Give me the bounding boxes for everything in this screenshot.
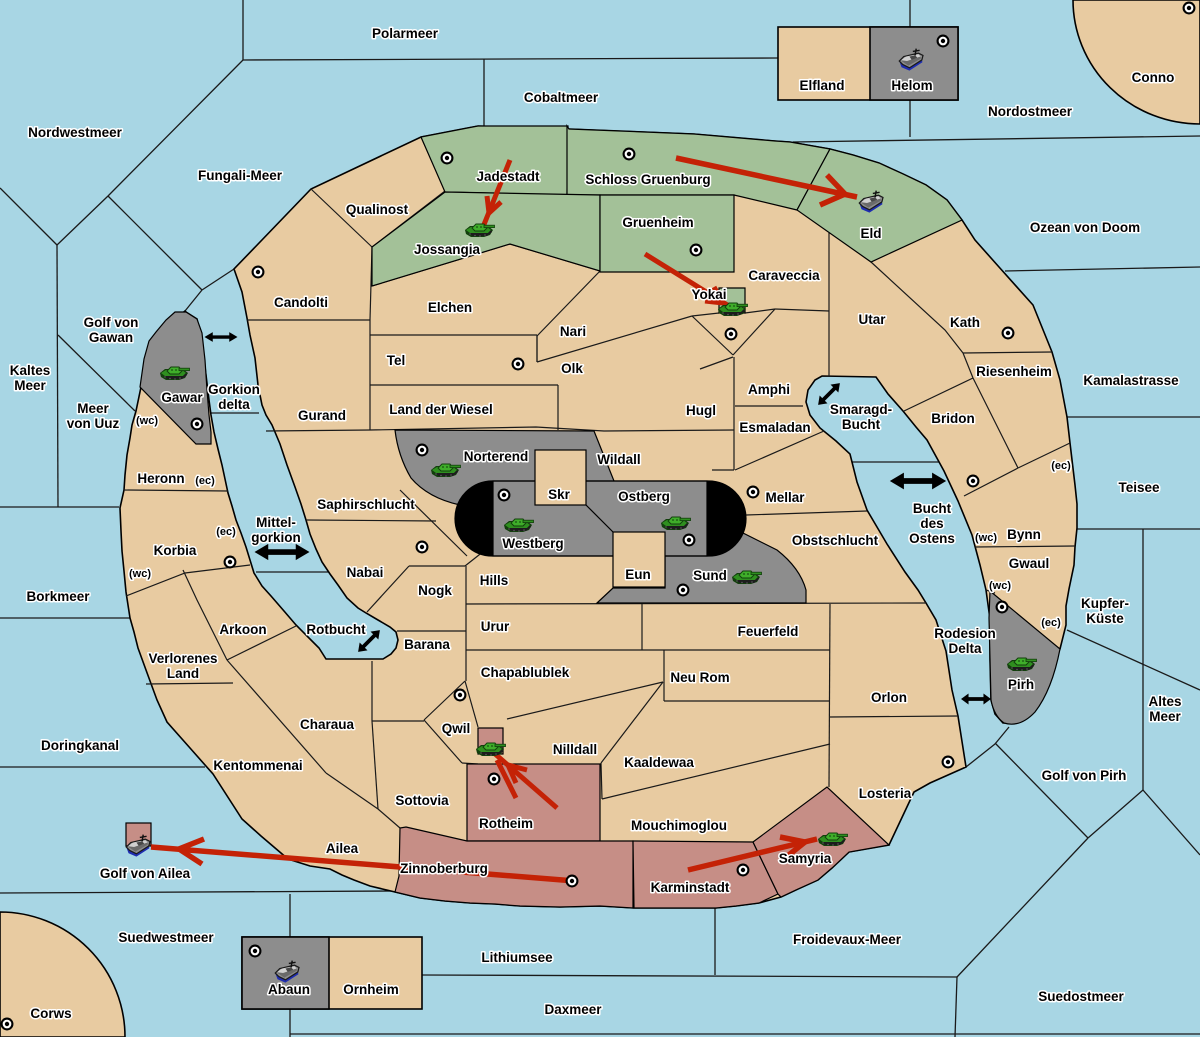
svg-text:Daxmeer: Daxmeer bbox=[544, 1002, 602, 1017]
svg-text:Küste: Küste bbox=[1086, 611, 1124, 626]
svg-text:Caraveccia: Caraveccia bbox=[748, 268, 820, 283]
svg-text:Meer: Meer bbox=[77, 401, 109, 416]
svg-text:(ec): (ec) bbox=[195, 475, 215, 487]
svg-text:Arkoon: Arkoon bbox=[219, 622, 266, 637]
svg-text:Saphirschlucht: Saphirschlucht bbox=[317, 497, 415, 512]
svg-text:Charaua: Charaua bbox=[300, 717, 355, 732]
svg-text:Helom: Helom bbox=[891, 78, 932, 93]
svg-text:Ostberg: Ostberg bbox=[618, 489, 670, 504]
svg-text:Qwil: Qwil bbox=[442, 721, 471, 736]
svg-text:Suedostmeer: Suedostmeer bbox=[1038, 989, 1124, 1004]
svg-text:Lithiumsee: Lithiumsee bbox=[481, 950, 553, 965]
svg-text:Mittel-: Mittel- bbox=[256, 515, 296, 530]
svg-text:Rotheim: Rotheim bbox=[479, 816, 533, 831]
svg-text:Gwaul: Gwaul bbox=[1009, 556, 1050, 571]
svg-text:Schloss Gruenburg: Schloss Gruenburg bbox=[585, 172, 710, 187]
svg-text:Candolti: Candolti bbox=[274, 295, 328, 310]
svg-text:Neu Rom: Neu Rom bbox=[670, 670, 729, 685]
svg-text:Skr: Skr bbox=[548, 487, 571, 502]
svg-text:(wc): (wc) bbox=[975, 532, 997, 544]
svg-text:Hugl: Hugl bbox=[686, 403, 716, 418]
svg-text:Hills: Hills bbox=[480, 573, 509, 588]
svg-text:Suedwestmeer: Suedwestmeer bbox=[118, 930, 214, 945]
svg-text:Kentommenai: Kentommenai bbox=[213, 758, 302, 773]
svg-text:Nabai: Nabai bbox=[347, 565, 384, 580]
svg-text:Losteria: Losteria bbox=[859, 786, 912, 801]
svg-text:Bridon: Bridon bbox=[931, 411, 975, 426]
svg-text:Obstschlucht: Obstschlucht bbox=[792, 533, 879, 548]
svg-text:Fungali-Meer: Fungali-Meer bbox=[198, 168, 283, 183]
svg-text:Olk: Olk bbox=[561, 361, 583, 376]
svg-text:(wc): (wc) bbox=[136, 415, 158, 427]
svg-text:(ec): (ec) bbox=[216, 526, 236, 538]
svg-text:Delta: Delta bbox=[948, 641, 982, 656]
svg-text:Kaltes: Kaltes bbox=[10, 363, 51, 378]
svg-text:Gurand: Gurand bbox=[298, 408, 346, 423]
svg-text:Chapablublek: Chapablublek bbox=[481, 665, 570, 680]
svg-text:Kaaldewaa: Kaaldewaa bbox=[624, 755, 694, 770]
svg-text:Ostens: Ostens bbox=[909, 531, 955, 546]
svg-text:Golf von: Golf von bbox=[84, 315, 139, 330]
svg-text:Nilldall: Nilldall bbox=[553, 742, 597, 757]
svg-text:Barana: Barana bbox=[404, 637, 450, 652]
svg-text:Conno: Conno bbox=[1132, 70, 1175, 85]
svg-text:Korbia: Korbia bbox=[154, 543, 197, 558]
svg-text:(wc): (wc) bbox=[129, 568, 151, 580]
svg-text:Karminstadt: Karminstadt bbox=[651, 880, 730, 895]
svg-text:Bynn: Bynn bbox=[1007, 527, 1041, 542]
svg-text:Utar: Utar bbox=[858, 312, 886, 327]
svg-text:Westberg: Westberg bbox=[502, 536, 563, 551]
svg-text:(ec): (ec) bbox=[1051, 460, 1071, 472]
svg-text:(wc): (wc) bbox=[989, 580, 1011, 592]
svg-text:Pirh: Pirh bbox=[1008, 677, 1034, 692]
svg-text:Wildall: Wildall bbox=[597, 452, 640, 467]
svg-text:Mellar: Mellar bbox=[765, 490, 805, 505]
svg-text:Kupfer-: Kupfer- bbox=[1081, 596, 1129, 611]
svg-text:Kath: Kath bbox=[950, 315, 980, 330]
svg-text:Nordwestmeer: Nordwestmeer bbox=[28, 125, 123, 140]
svg-text:Urur: Urur bbox=[481, 619, 510, 634]
svg-text:Kamalastrasse: Kamalastrasse bbox=[1083, 373, 1179, 388]
svg-text:Zinnoberburg: Zinnoberburg bbox=[400, 861, 488, 876]
svg-text:Gawar: Gawar bbox=[161, 390, 203, 405]
svg-text:Teisee: Teisee bbox=[1118, 480, 1160, 495]
svg-text:Ozean von Doom: Ozean von Doom bbox=[1030, 220, 1140, 235]
svg-text:Golf von Pirh: Golf von Pirh bbox=[1042, 768, 1127, 783]
svg-text:Orlon: Orlon bbox=[871, 690, 907, 705]
svg-text:Meer: Meer bbox=[1149, 709, 1181, 724]
svg-text:Corws: Corws bbox=[30, 1006, 71, 1021]
svg-text:Gawan: Gawan bbox=[89, 330, 133, 345]
svg-text:Yokai: Yokai bbox=[691, 287, 726, 302]
svg-text:Gorkion: Gorkion bbox=[208, 382, 260, 397]
svg-text:Mouchimoglou: Mouchimoglou bbox=[631, 818, 727, 833]
svg-text:Land: Land bbox=[167, 666, 199, 681]
svg-text:Abaun: Abaun bbox=[268, 982, 310, 997]
svg-text:Riesenheim: Riesenheim bbox=[976, 364, 1052, 379]
svg-text:Polarmeer: Polarmeer bbox=[372, 26, 439, 41]
svg-text:Rotbucht: Rotbucht bbox=[306, 622, 366, 637]
svg-text:Sottovia: Sottovia bbox=[395, 793, 449, 808]
svg-text:Golf von Ailea: Golf von Ailea bbox=[100, 866, 191, 881]
svg-text:Froidevaux-Meer: Froidevaux-Meer bbox=[793, 932, 902, 947]
svg-text:Nari: Nari bbox=[560, 324, 586, 339]
svg-text:Doringkanal: Doringkanal bbox=[41, 738, 119, 753]
svg-text:Bucht: Bucht bbox=[913, 501, 952, 516]
svg-text:delta: delta bbox=[218, 397, 250, 412]
svg-text:Land der Wiesel: Land der Wiesel bbox=[389, 402, 492, 417]
svg-text:Jadestadt: Jadestadt bbox=[476, 169, 540, 184]
svg-text:(ec): (ec) bbox=[1041, 617, 1061, 629]
svg-text:Feuerfeld: Feuerfeld bbox=[738, 624, 799, 639]
svg-text:Sund: Sund bbox=[693, 568, 727, 583]
svg-text:Esmaladan: Esmaladan bbox=[739, 420, 810, 435]
svg-text:Ailea: Ailea bbox=[326, 841, 359, 856]
svg-text:Amphi: Amphi bbox=[748, 382, 790, 397]
svg-text:Rodesion: Rodesion bbox=[934, 626, 996, 641]
svg-text:Qualinost: Qualinost bbox=[346, 202, 409, 217]
svg-text:Cobaltmeer: Cobaltmeer bbox=[524, 90, 599, 105]
svg-text:Eun: Eun bbox=[625, 567, 651, 582]
svg-text:Bucht: Bucht bbox=[842, 417, 881, 432]
svg-text:Smaragd-: Smaragd- bbox=[830, 402, 892, 417]
svg-text:des: des bbox=[920, 516, 943, 531]
svg-text:Borkmeer: Borkmeer bbox=[26, 589, 90, 604]
svg-text:Nogk: Nogk bbox=[418, 583, 452, 598]
svg-text:Eld: Eld bbox=[860, 226, 881, 241]
svg-text:Meer: Meer bbox=[14, 378, 46, 393]
svg-text:Norterend: Norterend bbox=[464, 449, 529, 464]
svg-text:Altes: Altes bbox=[1148, 694, 1181, 709]
svg-text:Gruenheim: Gruenheim bbox=[622, 215, 693, 230]
svg-text:gorkion: gorkion bbox=[251, 530, 301, 545]
svg-text:Ornheim: Ornheim bbox=[343, 982, 399, 997]
svg-text:Heronn: Heronn bbox=[137, 471, 184, 486]
svg-text:Verlorenes: Verlorenes bbox=[148, 651, 217, 666]
svg-text:Jossangia: Jossangia bbox=[414, 242, 481, 257]
svg-text:Tel: Tel bbox=[387, 353, 406, 368]
svg-text:Elfland: Elfland bbox=[799, 78, 844, 93]
svg-text:Nordostmeer: Nordostmeer bbox=[988, 104, 1073, 119]
svg-text:von Uuz: von Uuz bbox=[67, 416, 120, 431]
svg-text:Elchen: Elchen bbox=[428, 300, 472, 315]
svg-text:Samyria: Samyria bbox=[779, 851, 832, 866]
